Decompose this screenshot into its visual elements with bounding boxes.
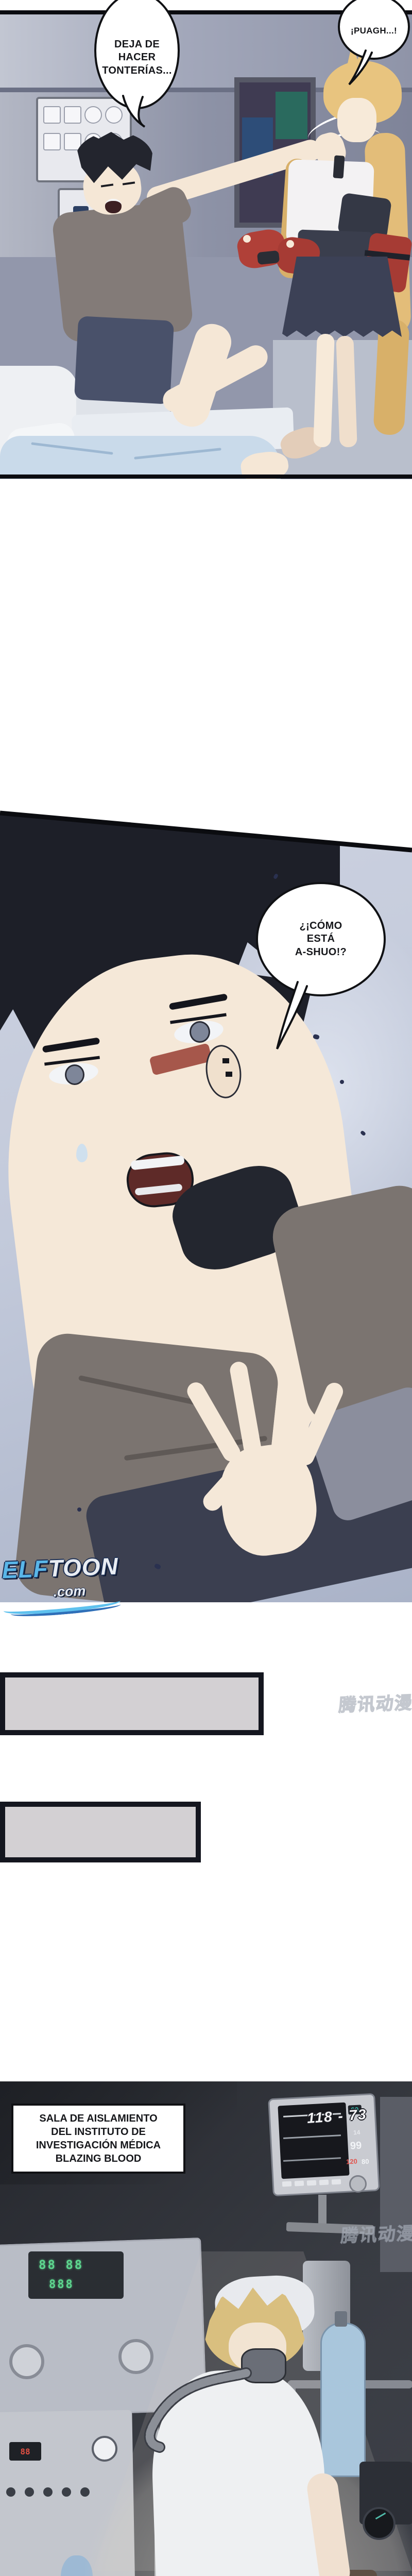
speech-bubble-como-tail (273, 978, 330, 1053)
pressure-gauge (363, 2507, 396, 2540)
cabinet-pane-teal (276, 92, 307, 139)
monitor-button (295, 2181, 304, 2187)
webtoon-page: 60 14 99 120 80 118 - 73 88 88 888 88 (0, 0, 412, 2576)
glove-dark-detail (257, 250, 280, 265)
breathing-tube (129, 2349, 268, 2458)
caption-line: INVESTIGACIÓN MÉDICA (36, 2139, 161, 2152)
machine-red-digits: 88 (9, 2442, 41, 2461)
dust-speck (340, 1080, 344, 1084)
man-mouth-open (105, 199, 122, 213)
panel-bottom-border (0, 474, 412, 479)
monitor-button (307, 2180, 316, 2186)
speech-bubble-deja-tail (116, 93, 152, 131)
caption-line: SALA DE AISLAMIENTO (39, 2112, 157, 2125)
woman-neck-ribbon (333, 155, 345, 178)
outlet-socket (43, 133, 61, 150)
monitor-spo2-value: 99 (350, 2140, 362, 2152)
woman-twin-tail-right-low (373, 319, 410, 436)
monitor-arm (318, 2195, 327, 2227)
ear-piercing (226, 1072, 232, 1077)
glove-fingertip (243, 235, 251, 243)
machine-knob (9, 2344, 44, 2379)
caption-location: SALA DE AISLAMIENTO DEL INSTITUTO DE INV… (11, 2104, 185, 2174)
oxygen-cylinder (320, 2323, 366, 2477)
censored-panel-1 (0, 1672, 264, 1735)
machine-dial (6, 2487, 15, 2497)
man-right-iris (190, 1021, 210, 1043)
sweat-drop (76, 1144, 88, 1162)
machine-dial (25, 2487, 34, 2497)
wall-shelf (380, 2097, 412, 2272)
elftoon-logo-toon: TOON (48, 1553, 119, 1582)
monitor-knob (349, 2175, 367, 2193)
machine-dial (43, 2487, 53, 2497)
machine-display-row1: 88 88 (39, 2258, 83, 2272)
bubble-line: DEJA DE (114, 38, 160, 52)
speech-bubble-puagh-tail (346, 47, 377, 89)
bubble-line: A-SHUO!? (295, 946, 347, 959)
man-left-iris (65, 1064, 84, 1085)
bubble-line: ESTÁ (307, 933, 335, 946)
monitor-nibp-sys: 120 (346, 2157, 357, 2165)
bubble-line: ¡PUAGH...! (351, 25, 397, 37)
tencent-watermark: 腾讯动漫 (340, 2219, 412, 2247)
outlet-socket (43, 106, 61, 124)
man-shorts (74, 316, 174, 404)
panel2-slanted-top-border (0, 810, 412, 856)
caption-line: DEL INSTITUTO DE (51, 2125, 146, 2139)
elftoon-logo: ELFTOON .com (2, 1552, 132, 1621)
bubble-line: ¿¡CÓMO (300, 920, 342, 933)
monitor-resp-value: 14 (353, 2129, 360, 2137)
dust-speck (77, 1507, 81, 1512)
ear-piercing (222, 1058, 229, 1063)
elftoon-logo-elf: ELF (2, 1555, 49, 1583)
machine-display-row2: 888 (49, 2278, 74, 2291)
caption-line: BLAZING BLOOD (56, 2152, 142, 2165)
outlet-socket (84, 106, 102, 124)
machine-dial (62, 2487, 71, 2497)
censored-panel-2 (0, 1802, 201, 1862)
outlet-socket (64, 106, 81, 124)
monitor-nibp-dia: 80 (362, 2158, 369, 2166)
monitor-button (282, 2181, 291, 2187)
woman-face (337, 98, 376, 142)
tencent-watermark: 腾讯动漫 (338, 1688, 412, 1716)
monitor-button (332, 2179, 341, 2185)
glove-fingertip (286, 240, 294, 248)
bubble-line: TONTERÍAS... (102, 64, 171, 78)
monitor-button (319, 2180, 329, 2185)
bubble-line: HACER (118, 51, 156, 64)
cylinder-valve (335, 2311, 347, 2327)
woman-skirt (282, 257, 402, 337)
